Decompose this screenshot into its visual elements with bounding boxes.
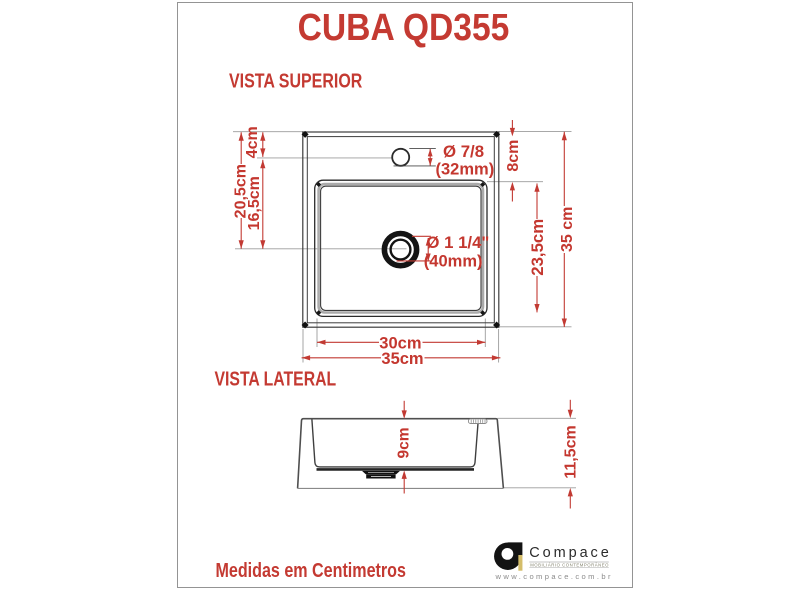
svg-text:Medidas em Centimetros: Medidas em Centimetros: [216, 559, 406, 581]
svg-text:VISTA LATERAL: VISTA LATERAL: [215, 368, 337, 390]
svg-text:(40mm): (40mm): [424, 252, 483, 270]
svg-text:Compace: Compace: [529, 545, 611, 561]
svg-text:CUBA QD355: CUBA QD355: [298, 6, 510, 48]
svg-text:23,5cm: 23,5cm: [528, 219, 547, 276]
svg-text:35 cm: 35 cm: [559, 207, 576, 252]
svg-text:Ø 1 1/4": Ø 1 1/4": [426, 233, 489, 252]
svg-text:Ø 7/8: Ø 7/8: [443, 142, 484, 161]
svg-text:9cm: 9cm: [396, 427, 413, 458]
svg-text:www.compace.com.br: www.compace.com.br: [495, 572, 613, 581]
svg-text:4cm: 4cm: [244, 126, 261, 158]
svg-text:16,5cm: 16,5cm: [246, 176, 263, 230]
svg-text:VISTA SUPERIOR: VISTA SUPERIOR: [229, 70, 362, 92]
svg-text:(32mm): (32mm): [436, 160, 495, 178]
svg-text:8cm: 8cm: [505, 140, 522, 172]
svg-text:35cm: 35cm: [381, 350, 423, 368]
svg-text:MOBILIÁRIO CONTEMPORÂNEO: MOBILIÁRIO CONTEMPORÂNEO: [530, 563, 609, 568]
svg-text:11,5cm: 11,5cm: [563, 425, 580, 478]
